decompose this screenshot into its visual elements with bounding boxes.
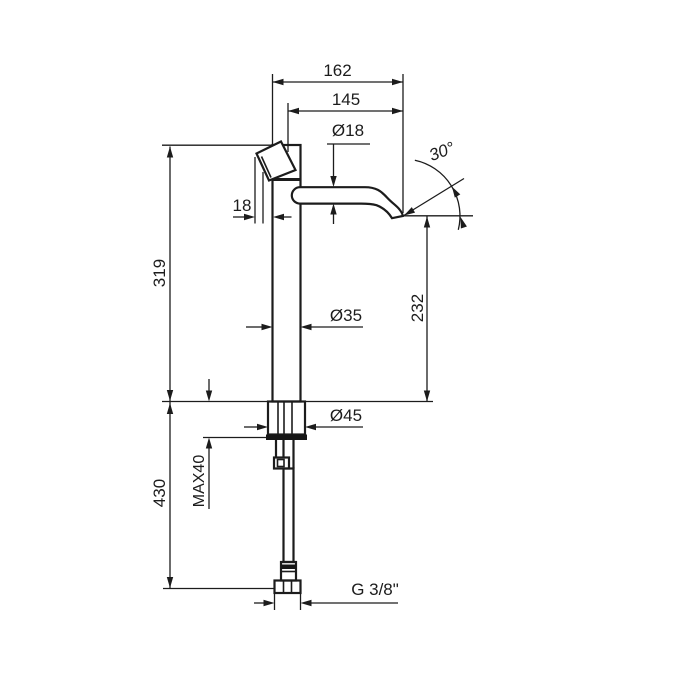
dim-label-reach-overall: 162 bbox=[323, 61, 351, 80]
dim-label-spout-angle: 30° bbox=[426, 138, 457, 165]
dim-label-spout-diameter: Ø18 bbox=[332, 121, 364, 140]
faucet-outline bbox=[257, 142, 403, 594]
mounting-shank bbox=[274, 440, 294, 469]
drawing-page: 162 145 Ø18 30° 18 319 Ø35 232 Ø45 MAX40… bbox=[0, 0, 700, 700]
dim-label-thread-size: G 3/8" bbox=[351, 580, 399, 599]
dim-label-reach-aerator: 145 bbox=[332, 90, 360, 109]
dim-label-handle-offset: 18 bbox=[233, 196, 252, 215]
faucet-body bbox=[273, 145, 301, 402]
dim-label-body-diameter: Ø35 bbox=[330, 306, 362, 325]
angle-dimension-30 bbox=[402, 160, 467, 230]
connector-nut bbox=[275, 581, 301, 594]
hose-fitting bbox=[281, 562, 296, 581]
dim-label-spout-outlet-height: 232 bbox=[408, 294, 427, 322]
dim-label-hose-length: 430 bbox=[150, 479, 169, 507]
dimension-annotations: 162 145 Ø18 30° 18 319 Ø35 232 Ø45 MAX40… bbox=[150, 61, 473, 610]
dim-label-body-height: 319 bbox=[150, 259, 169, 287]
base-gasket bbox=[266, 435, 307, 441]
dim-label-max-counter-thickness: MAX40 bbox=[191, 455, 208, 508]
spout bbox=[292, 187, 403, 218]
supply-hose bbox=[284, 469, 294, 563]
faucet-technical-drawing: 162 145 Ø18 30° 18 319 Ø35 232 Ø45 MAX40… bbox=[0, 0, 700, 700]
dim-label-base-diameter: Ø45 bbox=[330, 406, 362, 425]
base-collar bbox=[266, 402, 307, 441]
